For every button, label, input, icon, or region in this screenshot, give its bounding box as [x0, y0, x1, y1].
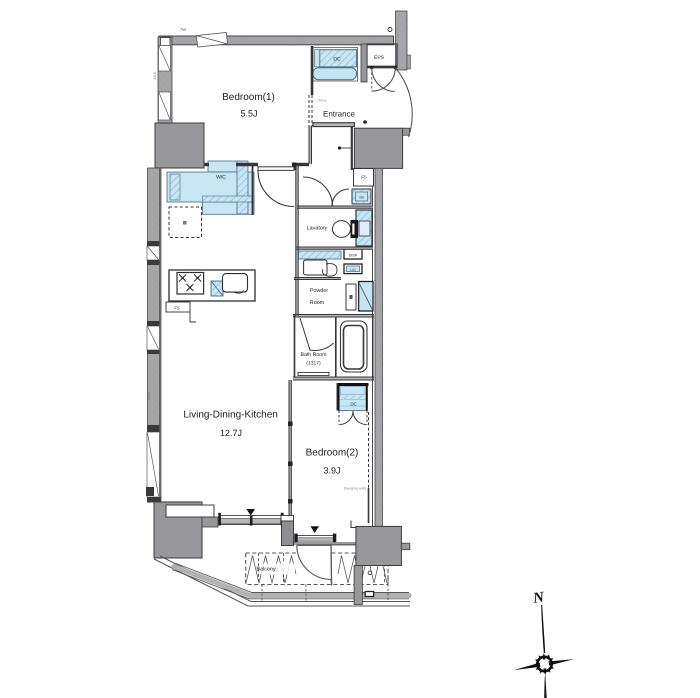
svg-text:(1317): (1317) [306, 361, 321, 367]
svg-text:Bath Room: Bath Room [301, 352, 327, 358]
svg-text:12.7J: 12.7J [220, 428, 242, 438]
svg-text:FS: FS [174, 306, 180, 311]
svg-text:7W: 7W [180, 27, 186, 32]
svg-text:L/D: L/D [350, 268, 356, 272]
svg-text:Entrance: Entrance [323, 109, 356, 118]
svg-text:228Hm: 228Hm [317, 99, 328, 103]
svg-text:DISP: DISP [349, 254, 358, 258]
svg-text:Bedroom(2): Bedroom(2) [306, 448, 359, 459]
svg-text:Room: Room [310, 300, 325, 306]
svg-text:Powder: Powder [310, 288, 328, 294]
svg-text:DC: DC [350, 402, 356, 407]
svg-text:SB: SB [359, 196, 364, 200]
svg-text:EPS: EPS [374, 55, 385, 61]
svg-text:3.9J: 3.9J [323, 466, 340, 476]
svg-text:Living-Dining-Kitchen: Living-Dining-Kitchen [183, 410, 278, 421]
svg-text:WIC: WIC [216, 175, 226, 181]
svg-text:DC: DC [333, 57, 341, 63]
svg-text:Balcony: Balcony [256, 567, 275, 573]
svg-text:Bedroom(1): Bedroom(1) [222, 92, 275, 103]
svg-text:4110: 4110 [153, 72, 157, 80]
svg-text:(hanging wall): (hanging wall) [344, 487, 366, 491]
svg-text:3110: 3110 [147, 392, 151, 400]
svg-text:5.5J: 5.5J [240, 108, 257, 118]
svg-text:FS: FS [361, 175, 367, 180]
svg-text:Lavatory: Lavatory [307, 226, 328, 232]
